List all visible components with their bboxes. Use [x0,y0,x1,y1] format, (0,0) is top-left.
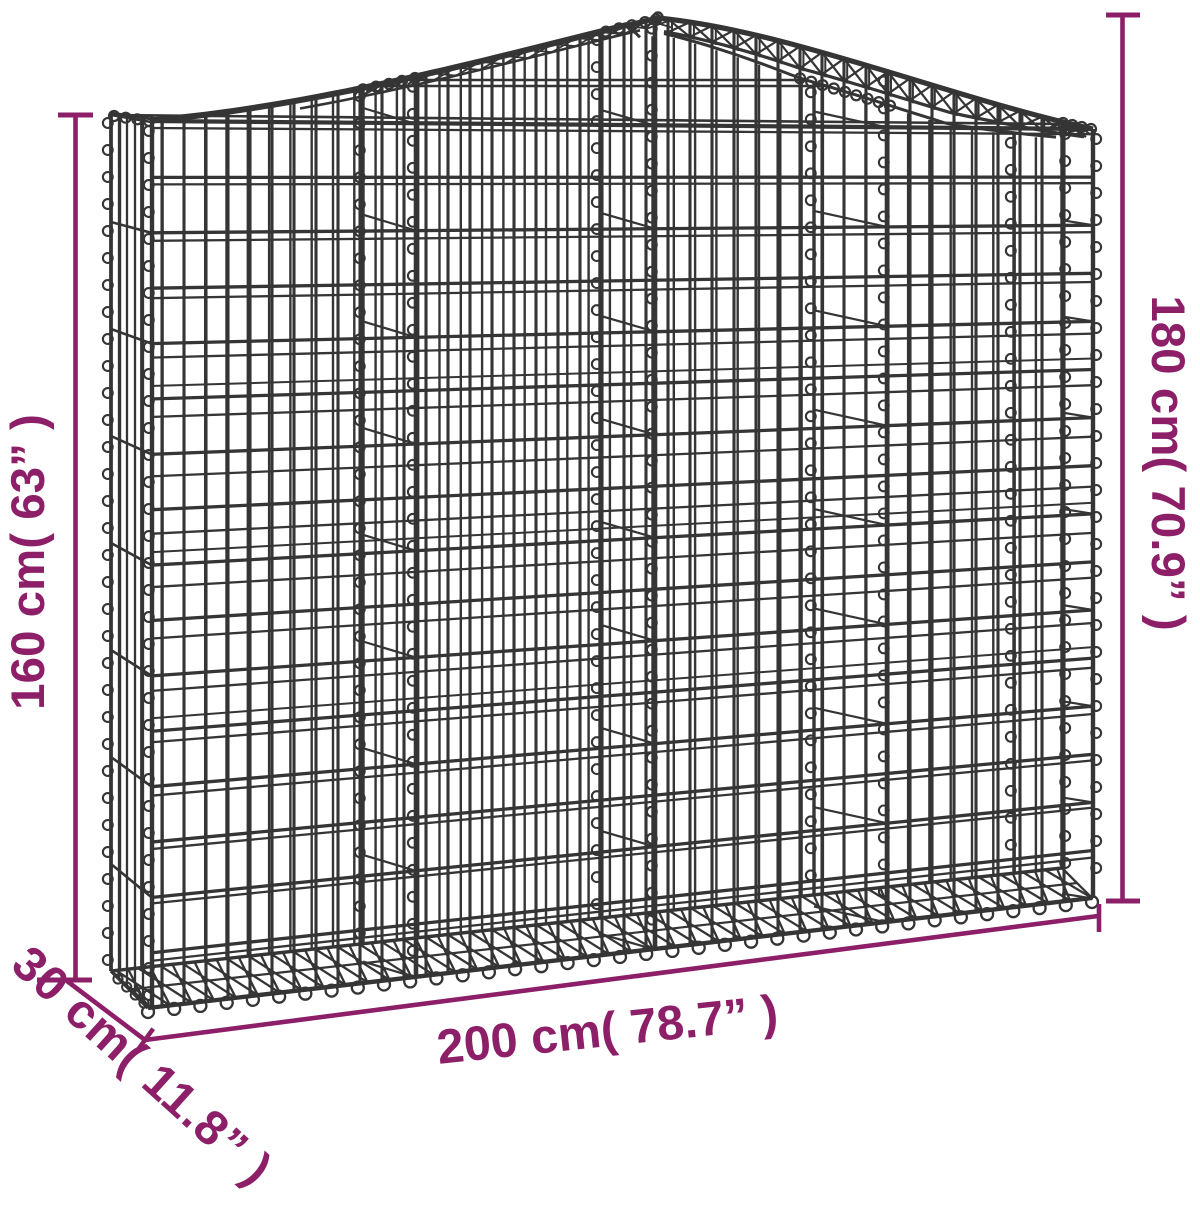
svg-text:160 cm( 63” ): 160 cm( 63” ) [2,414,55,710]
svg-text:180 cm( 70.9” ): 180 cm( 70.9” ) [1141,295,1194,630]
